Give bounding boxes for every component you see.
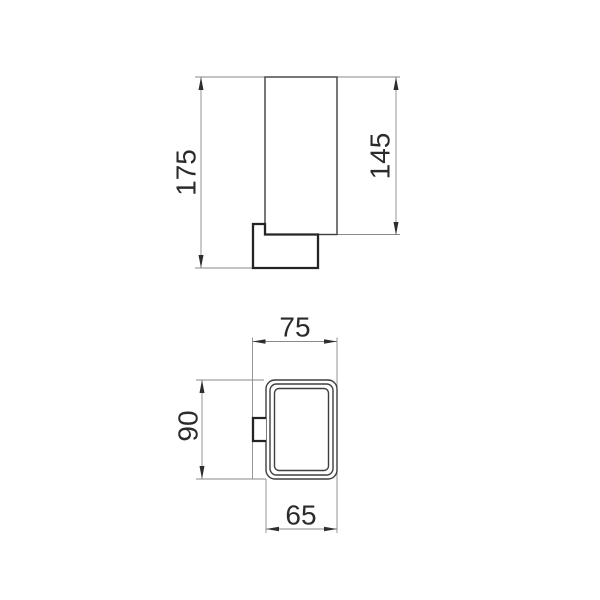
dim-label-cup-width: 65 xyxy=(285,500,316,531)
side-view: 175 145 xyxy=(171,77,401,268)
arrow-plan-height-bottom xyxy=(200,466,205,479)
dim-label-overall-height: 90 xyxy=(173,410,204,441)
arrow-width-right xyxy=(324,527,337,532)
arrow-total-height-top xyxy=(199,77,204,90)
top-view: 75 90 65 xyxy=(173,312,338,534)
arrow-cup-height-top xyxy=(394,77,399,90)
arrow-depth-left xyxy=(253,339,266,344)
arrow-total-height-bottom xyxy=(199,255,204,268)
mount-tab-outline xyxy=(253,418,266,441)
technical-drawing: 175 145 75 90 65 xyxy=(0,0,600,600)
dim-label-total-height: 175 xyxy=(171,149,202,196)
cup-outline xyxy=(265,77,337,235)
arrow-plan-height-top xyxy=(200,380,205,393)
arrow-depth-right xyxy=(324,339,337,344)
arrow-cup-height-bottom xyxy=(394,222,399,235)
dim-label-cup-height: 145 xyxy=(365,133,396,180)
dim-label-overall-depth: 75 xyxy=(279,312,310,343)
cup-inner-profile xyxy=(275,389,329,471)
arrow-width-left xyxy=(266,527,279,532)
